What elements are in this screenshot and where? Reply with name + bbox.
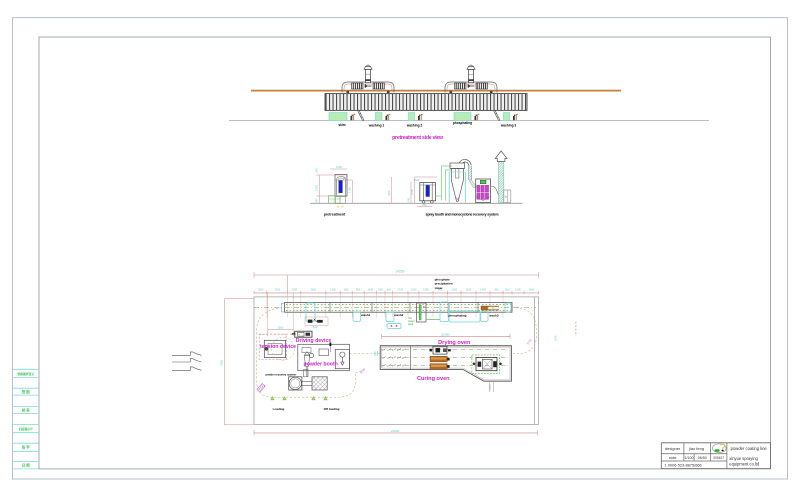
- svg-text:washing 1: washing 1: [368, 124, 385, 128]
- svg-text:pretreatment: pretreatment: [324, 212, 346, 216]
- svg-text:旧底图总号: 旧底图总号: [19, 427, 33, 431]
- svg-text:5000: 5000: [488, 384, 492, 391]
- svg-text:wash1: wash1: [360, 313, 371, 317]
- svg-text:Loading: Loading: [273, 407, 285, 411]
- svg-text:1500: 1500: [258, 287, 264, 291]
- svg-text:800: 800: [387, 287, 392, 291]
- svg-text:1200: 1200: [411, 287, 417, 291]
- svg-text:Curing oven: Curing oven: [417, 376, 450, 382]
- svg-text:3000: 3000: [310, 287, 316, 291]
- svg-text:4500: 4500: [388, 190, 391, 196]
- svg-text:Drying oven: Drying oven: [438, 340, 471, 346]
- svg-text:2000: 2000: [555, 335, 558, 341]
- svg-text:washing 2: washing 2: [406, 124, 423, 128]
- svg-text:450: 450: [315, 198, 319, 203]
- svg-text:1450: 1450: [330, 287, 336, 291]
- svg-text:2250: 2250: [274, 287, 280, 291]
- svg-text:powder recovery system: powder recovery system: [265, 372, 296, 376]
- svg-text:22000: 22000: [442, 333, 451, 337]
- svg-text:005617: 005617: [713, 456, 724, 460]
- svg-text:06/50: 06/50: [698, 456, 707, 460]
- svg-text:1400: 1400: [480, 287, 486, 291]
- svg-text:管路图样变记: 管路图样变记: [16, 372, 34, 376]
- svg-text:phosphating: phosphating: [453, 121, 472, 125]
- svg-text:450: 450: [407, 197, 410, 202]
- svg-text:Off loading: Off loading: [324, 407, 340, 411]
- svg-text:校 审: 校 审: [22, 407, 30, 412]
- svg-text:200: 200: [315, 168, 319, 173]
- svg-text:签 字: 签 字: [21, 445, 30, 450]
- svg-text:3500: 3500: [278, 326, 284, 330]
- svg-text:1500: 1500: [423, 287, 429, 291]
- svg-text:日 期: 日 期: [22, 463, 30, 468]
- svg-text:650: 650: [378, 287, 383, 291]
- svg-text:24250: 24250: [396, 270, 405, 274]
- svg-text:pretreatment side view: pretreatment side view: [392, 135, 444, 141]
- svg-text:850: 850: [356, 287, 361, 291]
- svg-text:skim: skim: [338, 123, 345, 127]
- svg-text:1500: 1500: [410, 189, 414, 195]
- svg-text:spray booth and monocyclone re: spray booth and monocyclone recovery sys…: [426, 212, 499, 216]
- svg-text:washing 3: washing 3: [500, 124, 517, 128]
- svg-text:1700: 1700: [291, 287, 297, 291]
- svg-text:Driving device: Driving device: [296, 338, 332, 344]
- svg-text:3500: 3500: [414, 178, 420, 182]
- svg-text:jiao feng: jiao feng: [688, 446, 704, 451]
- svg-text:tension device: tension device: [260, 344, 296, 350]
- svg-text:phosphating: phosphating: [449, 314, 467, 318]
- svg-text:600: 600: [313, 325, 318, 329]
- svg-text:designer: designer: [665, 446, 681, 451]
- svg-text:900: 900: [344, 287, 349, 291]
- svg-text:23000: 23000: [391, 429, 400, 433]
- svg-text:7000: 7000: [220, 360, 224, 366]
- svg-text:1200: 1200: [515, 287, 521, 291]
- svg-text:1350: 1350: [451, 287, 457, 291]
- svg-text:tower: tower: [435, 286, 444, 290]
- svg-text:1700: 1700: [397, 287, 403, 291]
- svg-text:1 0006-523-8875/666: 1 0006-523-8875/666: [665, 463, 702, 468]
- svg-text:900: 900: [494, 287, 499, 291]
- svg-text:powder booth: powder booth: [304, 361, 338, 367]
- svg-text:note: note: [669, 455, 678, 460]
- svg-text:1350: 1350: [315, 185, 319, 191]
- svg-text:powder coating line: powder coating line: [731, 446, 768, 451]
- svg-text:xinyue spraying: xinyue spraying: [729, 456, 758, 461]
- svg-text:equipment co.ltd: equipment co.ltd: [729, 462, 760, 467]
- svg-text:签 图: 签 图: [21, 389, 30, 394]
- svg-text:1050: 1050: [336, 165, 342, 169]
- svg-text:800: 800: [505, 287, 510, 291]
- svg-text:1500: 1500: [466, 287, 472, 291]
- svg-text:tank: tank: [408, 322, 414, 326]
- svg-text:1450: 1450: [528, 287, 534, 291]
- svg-text:1445: 1445: [367, 287, 373, 291]
- svg-text:wash2: wash2: [393, 313, 404, 317]
- svg-text:1/100: 1/100: [685, 456, 694, 460]
- svg-text:1750: 1750: [348, 187, 352, 193]
- svg-text:wash3: wash3: [488, 314, 499, 318]
